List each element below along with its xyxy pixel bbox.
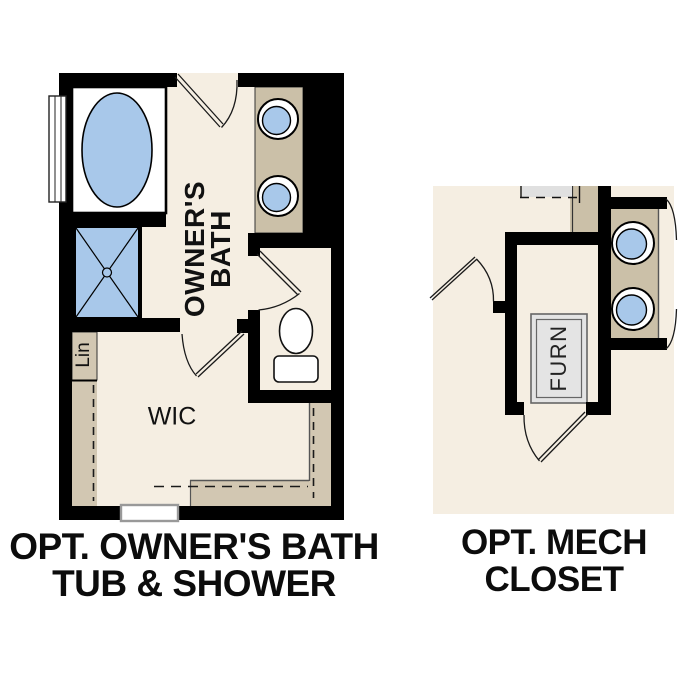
sink-bowl xyxy=(617,229,647,259)
room-label-line2: BATH xyxy=(208,181,234,317)
wic-shelf-bottom xyxy=(190,480,331,506)
tub xyxy=(82,93,152,207)
wic-label: WIC xyxy=(148,403,197,432)
toilet-bowl xyxy=(280,309,313,354)
sink-bowl xyxy=(263,107,291,135)
owners-bath-room-label: OWNER'S BATH xyxy=(182,181,234,317)
shower-drain xyxy=(103,268,112,277)
wall-cabinet xyxy=(570,186,598,232)
sink-bowl xyxy=(263,184,291,212)
left-caption-line2: TUB & SHOWER xyxy=(9,565,379,602)
furnace-label: FURN xyxy=(546,324,572,391)
right-plan-caption: OPT. MECH CLOSET xyxy=(461,524,647,598)
left-caption-line1: OPT. OWNER'S BATH xyxy=(9,528,379,565)
right-caption-line2: CLOSET xyxy=(461,561,647,598)
window xyxy=(49,96,66,202)
left-plan-caption: OPT. OWNER'S BATH TUB & SHOWER xyxy=(9,528,379,602)
toilet-tank xyxy=(274,356,318,382)
sink-bowl xyxy=(617,295,647,325)
cased-opening xyxy=(121,505,178,521)
floor-plan-sheet: OWNER'S BATH WIC Lin FURN OPT. OWNER'S B… xyxy=(0,0,687,687)
right-caption-line1: OPT. MECH xyxy=(461,524,647,561)
linen-label: Lin xyxy=(73,342,95,367)
overhead-shelf xyxy=(522,186,572,197)
